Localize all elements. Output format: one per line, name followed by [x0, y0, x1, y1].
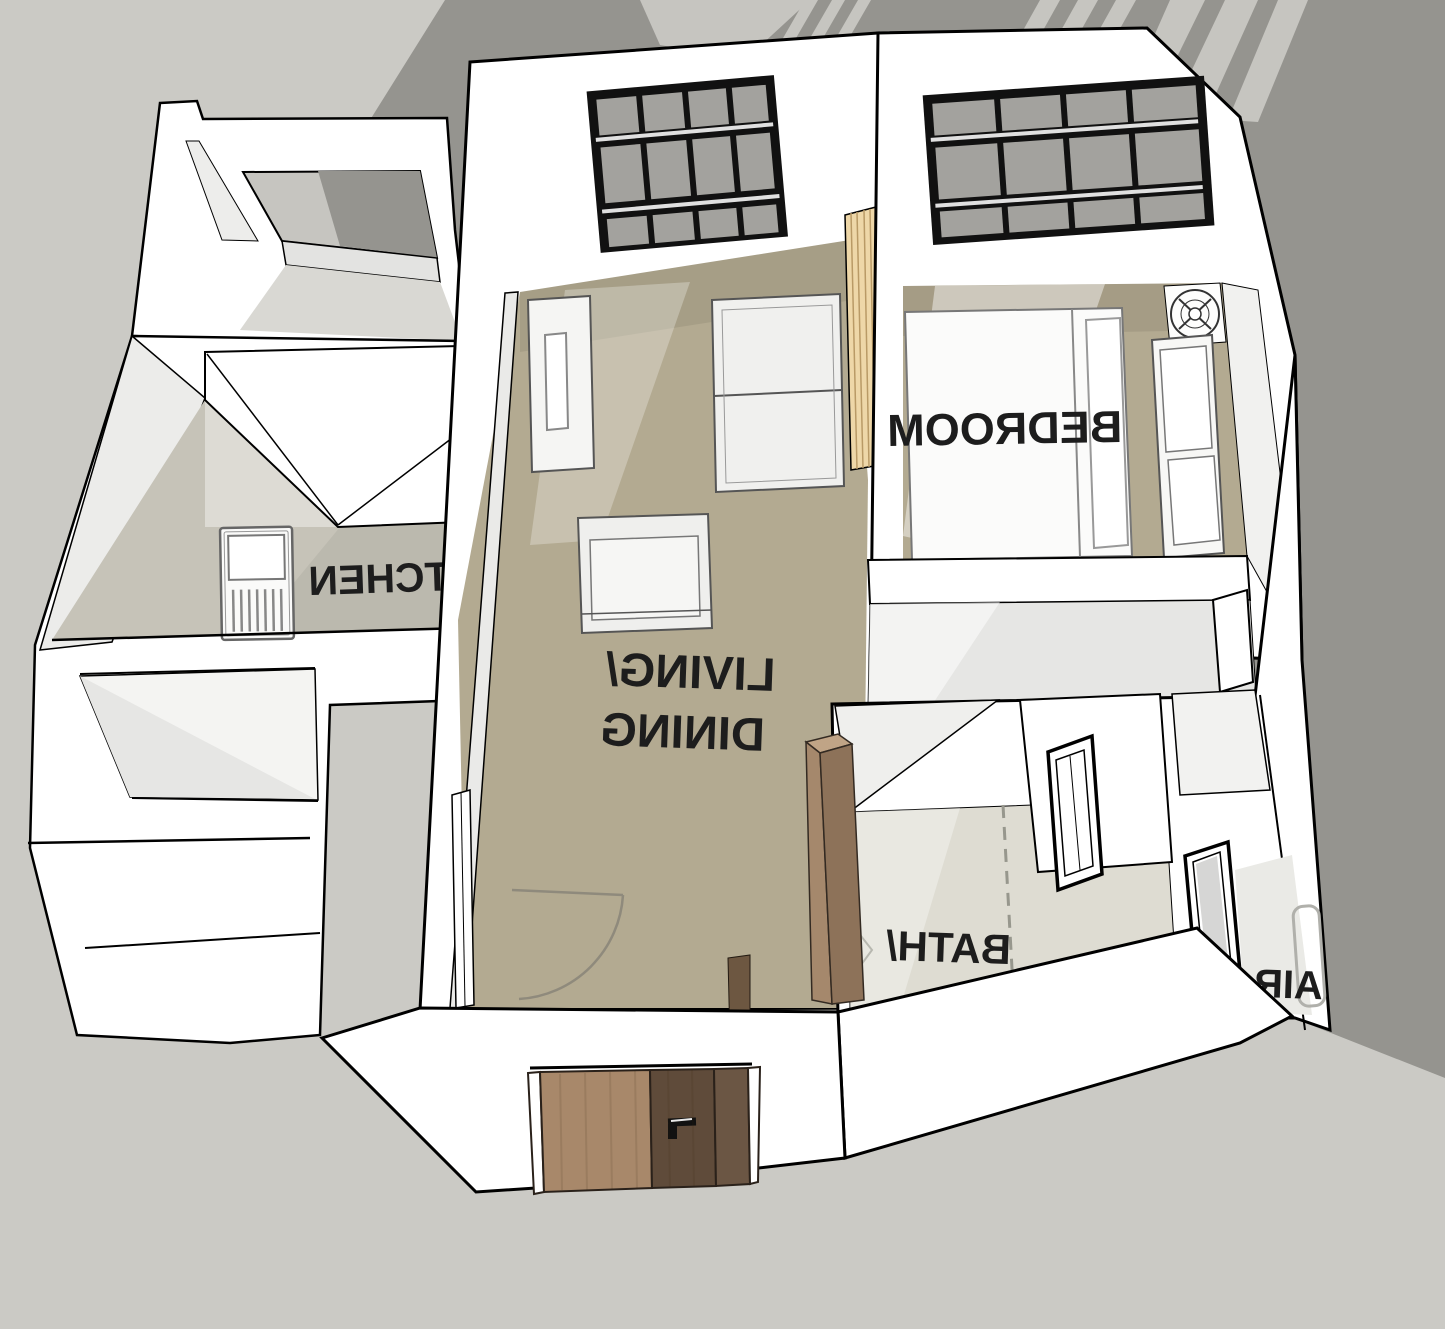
bedroom-label: BEDROOM [887, 401, 1123, 456]
door-jamb-right [748, 1067, 760, 1184]
sideboard [528, 296, 594, 472]
door-panel-narrow [714, 1068, 750, 1186]
sofa [712, 294, 844, 492]
porch-structure [132, 101, 477, 342]
floor-plan-stage: KITCHEN [0, 0, 1445, 1329]
floor-plan-canvas: KITCHEN [0, 0, 1445, 1329]
living-label-line2: DINING [599, 702, 765, 761]
bedroom-block: BEDROOM [868, 28, 1302, 712]
corridor-wall-stub [1213, 590, 1253, 692]
stove-appliance [220, 527, 294, 640]
bath-window-icon [1048, 736, 1102, 890]
entry-door [528, 1067, 760, 1194]
bath-label-line1: BATH/ [885, 922, 1012, 973]
bedroom-window-icon [923, 76, 1215, 245]
bath-wall-face-right [1172, 690, 1270, 795]
door-panel-dark [650, 1069, 716, 1188]
armchair-table [578, 514, 712, 633]
wardrobe [1152, 335, 1224, 558]
corridor-wall-band [868, 556, 1250, 604]
living-window-icon [587, 75, 788, 253]
living-label-line1: LIVING/ [605, 642, 776, 701]
